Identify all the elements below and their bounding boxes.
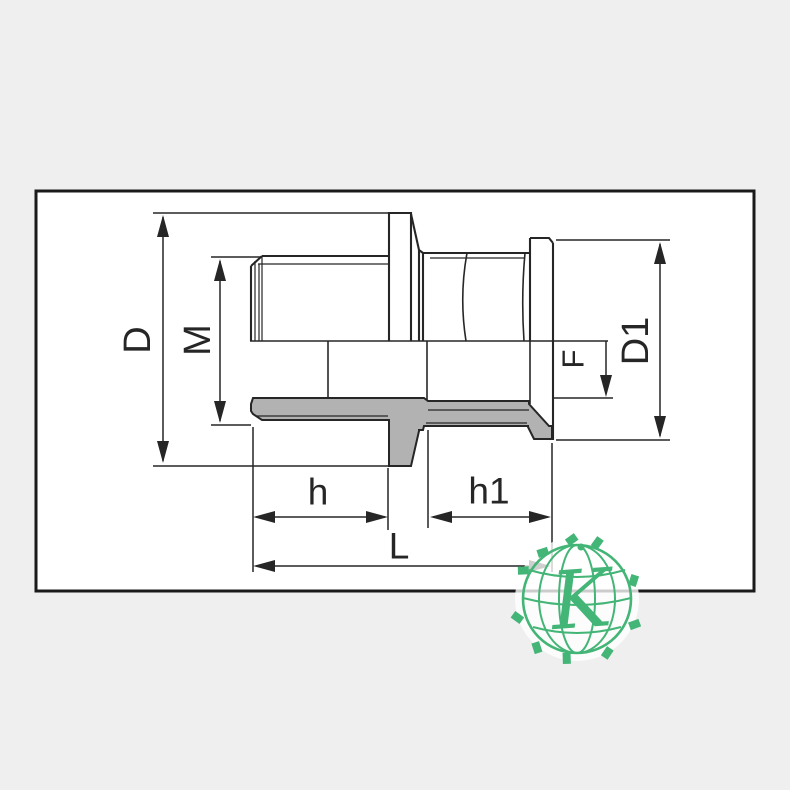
technical-drawing: D M D1 F h h1 [0, 0, 790, 790]
dim-label-M: M [177, 324, 219, 356]
dim-label-F: F [556, 350, 591, 369]
globe-pole-dot [578, 544, 585, 551]
dim-label-L: L [389, 526, 410, 567]
logo-monogram: K [546, 551, 618, 648]
screenshot-canvas: D M D1 F h h1 [0, 0, 790, 790]
dim-label-h1: h1 [468, 471, 509, 512]
dim-label-D: D [117, 326, 159, 353]
dim-label-D1: D1 [615, 317, 657, 366]
dim-label-h: h [308, 472, 329, 513]
